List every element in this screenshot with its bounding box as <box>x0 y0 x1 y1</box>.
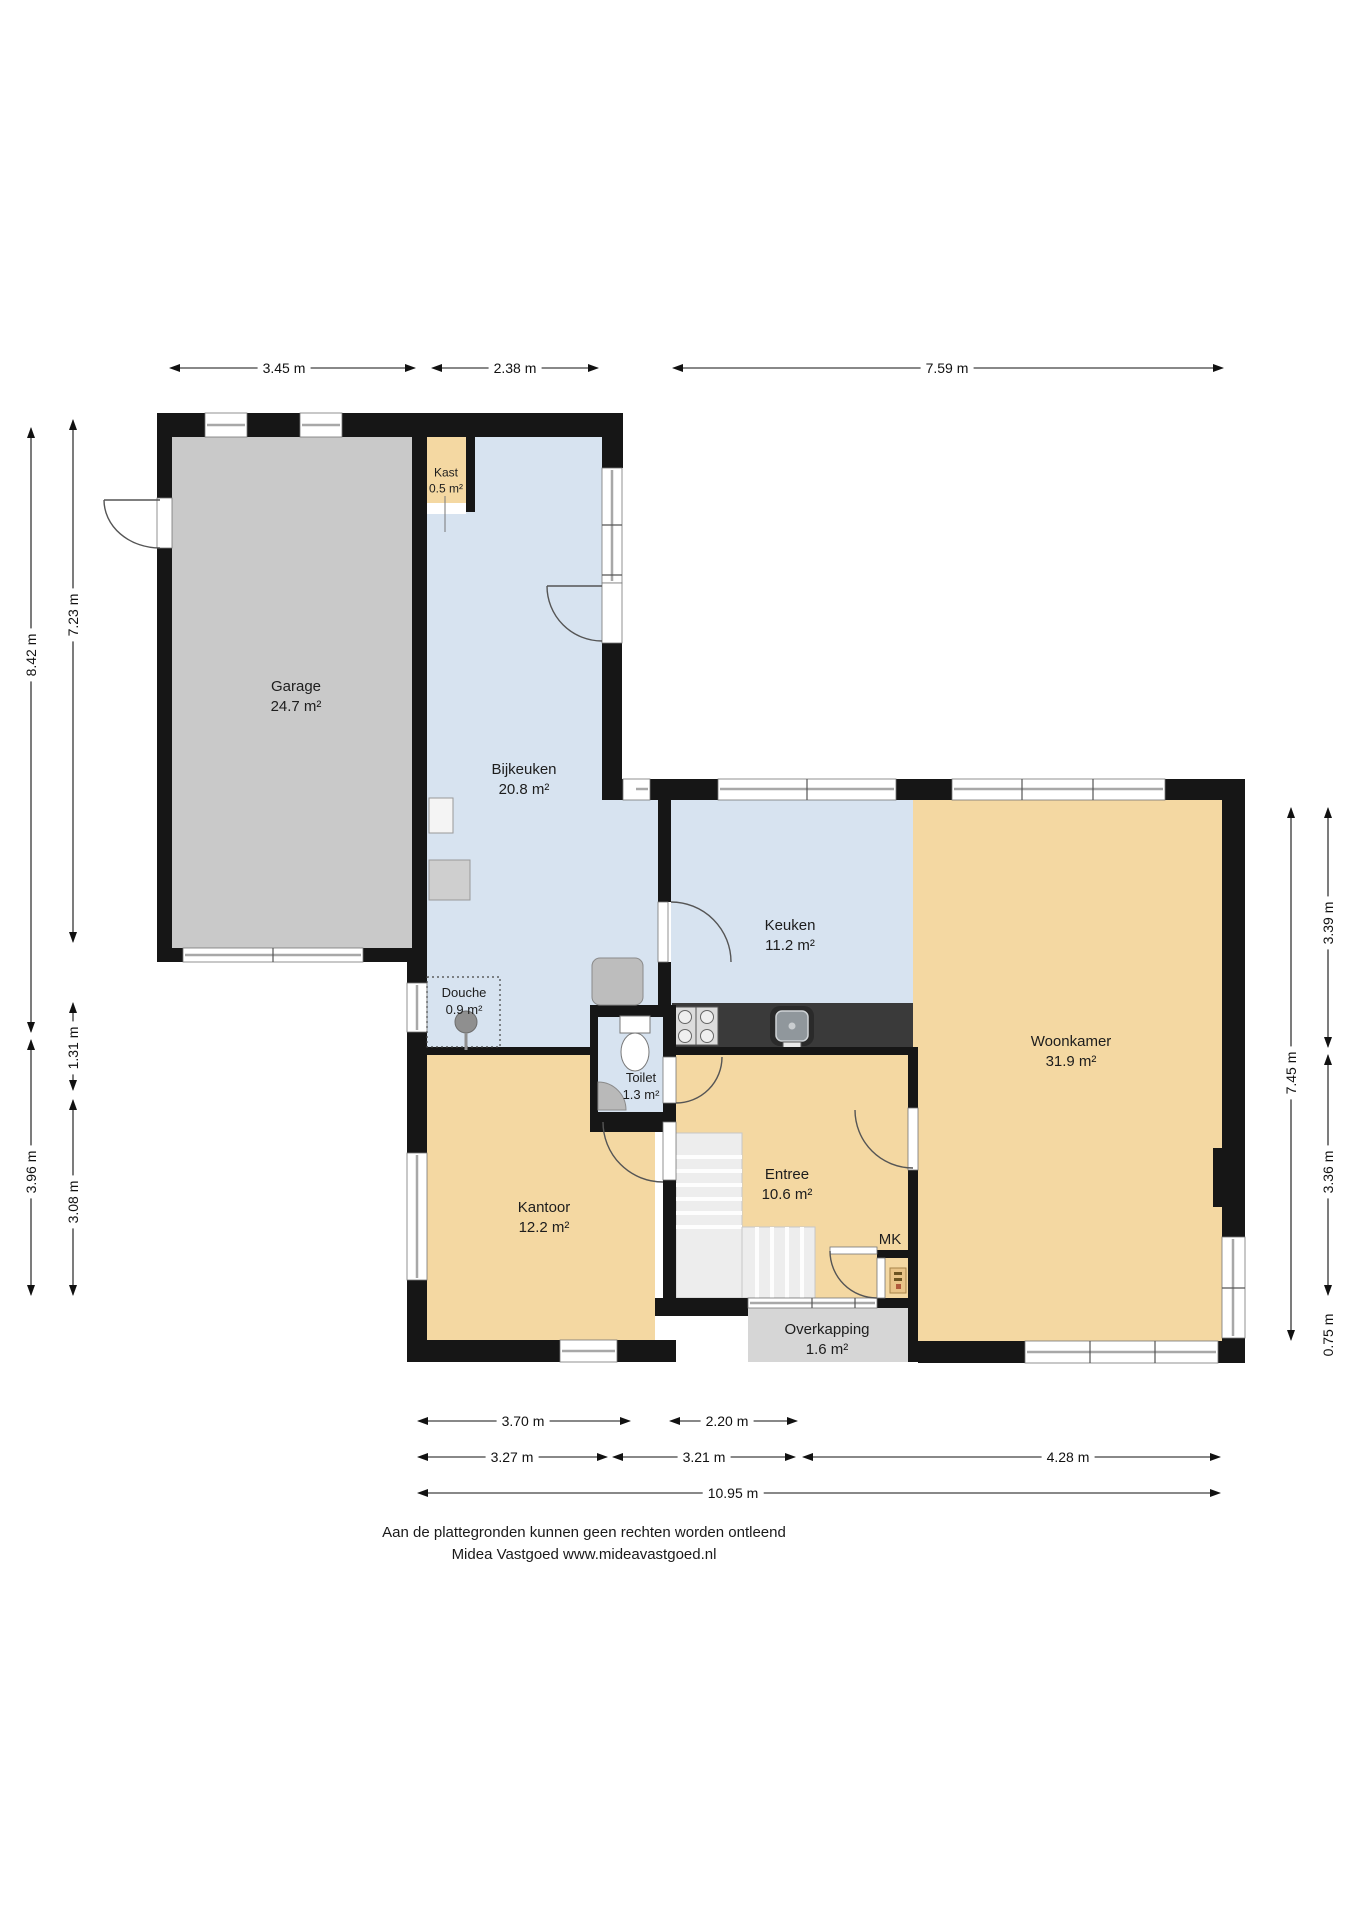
room-label-kast: Kast0.5 m² <box>429 465 463 496</box>
dim-right-1: 3.39 m <box>1320 897 1336 950</box>
room-label-kantoor: Kantoor12.2 m² <box>518 1198 571 1239</box>
dim-top-3: 7.59 m <box>921 360 974 376</box>
dim-right-4: 0.75 m <box>1320 1309 1336 1362</box>
dim-left-1: 8.42 m <box>23 629 39 682</box>
dim-bottom-6: 10.95 m <box>703 1485 764 1501</box>
floorplan-page: Garage24.7 m² Bijkeuken20.8 m² Kast0.5 m… <box>0 0 1358 1920</box>
footer-disclaimer: Aan de plattegronden kunnen geen rechten… <box>382 1522 786 1566</box>
room-label-douche: Douche0.9 m² <box>442 985 487 1019</box>
dim-right-3: 3.36 m <box>1320 1146 1336 1199</box>
dim-right-2: 7.45 m <box>1283 1047 1299 1100</box>
toilet-icon <box>620 1016 650 1071</box>
dim-bottom-3: 3.27 m <box>486 1449 539 1465</box>
room-label-garage: Garage24.7 m² <box>271 677 322 718</box>
sink-icon <box>770 1006 814 1051</box>
dim-left-2: 7.23 m <box>65 589 81 642</box>
room-label-woonkamer: Woonkamer31.9 m² <box>1031 1032 1112 1073</box>
dim-bottom-4: 3.21 m <box>678 1449 731 1465</box>
dim-bottom-1: 3.70 m <box>497 1413 550 1429</box>
room-label-toilet: Toilet1.3 m² <box>623 1070 660 1104</box>
floorplan-drawing <box>0 0 1358 1920</box>
footer-line-2: Midea Vastgoed www.mideavastgoed.nl <box>382 1544 786 1566</box>
room-label-overkapping: Overkapping1.6 m² <box>784 1320 869 1361</box>
dim-bottom-2: 2.20 m <box>701 1413 754 1429</box>
stove-icon <box>674 1007 718 1045</box>
dim-top-2: 2.38 m <box>489 360 542 376</box>
dim-left-5: 3.08 m <box>65 1176 81 1229</box>
footer-line-1: Aan de plattegronden kunnen geen rechten… <box>382 1522 786 1544</box>
kitchen-counter <box>672 1003 913 1051</box>
mk-boiler-icon <box>890 1268 906 1293</box>
room-label-entree: Entree10.6 m² <box>762 1165 813 1206</box>
room-label-mk: MK <box>879 1230 902 1250</box>
dim-left-4: 3.96 m <box>23 1146 39 1199</box>
dim-top-1: 3.45 m <box>258 360 311 376</box>
washer-icon <box>592 958 643 1005</box>
dim-bottom-5: 4.28 m <box>1042 1449 1095 1465</box>
room-label-keuken: Keuken11.2 m² <box>765 916 816 957</box>
room-label-bijkeuken: Bijkeuken20.8 m² <box>491 760 556 801</box>
dim-left-3: 1.31 m <box>65 1022 81 1075</box>
